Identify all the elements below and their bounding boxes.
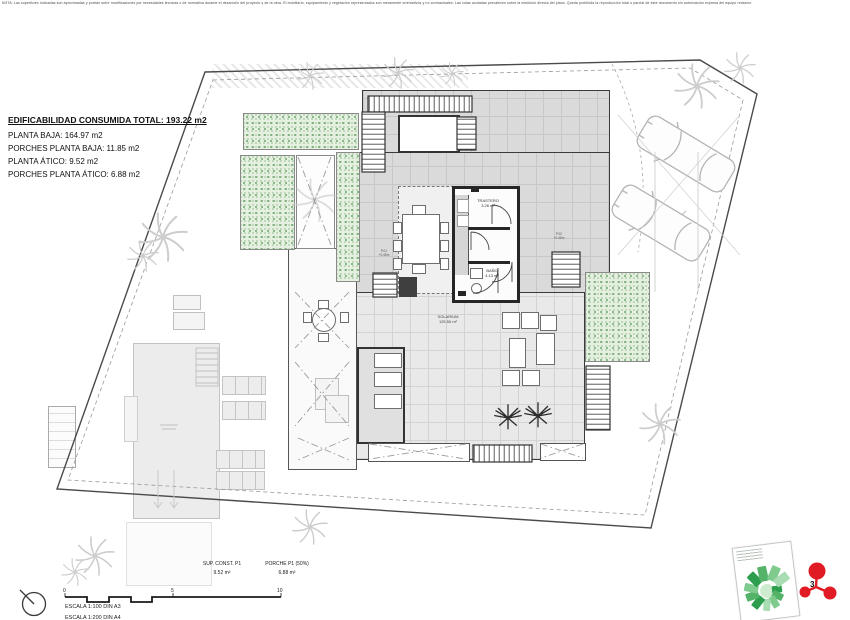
summary-line: PLANTA ÁTICO: 9.52 m2 bbox=[8, 155, 207, 168]
wall bbox=[468, 227, 510, 230]
level-mark: P.01 +0.45m bbox=[374, 249, 394, 257]
toilet bbox=[471, 283, 482, 294]
level-mark: P.02 +0.45m bbox=[549, 232, 569, 240]
solarium-label: SOLARIUM 125.50 m² bbox=[426, 314, 470, 324]
sofa-module bbox=[522, 370, 540, 386]
area-table-value: 6.88 m² bbox=[254, 570, 320, 576]
chair bbox=[340, 312, 349, 323]
green-bed bbox=[336, 152, 360, 282]
stair-landing bbox=[399, 277, 417, 297]
lower-platform bbox=[126, 522, 212, 586]
thumbnail-text-lines bbox=[736, 548, 763, 561]
car-icon bbox=[606, 109, 740, 269]
chair bbox=[440, 240, 449, 252]
sun-lounger bbox=[222, 401, 266, 420]
dining-table bbox=[402, 214, 440, 264]
scale-tick: 10 bbox=[277, 588, 283, 594]
chair bbox=[393, 258, 402, 270]
disclaimer-text: NOTA: Las superficies indicadas son apro… bbox=[2, 1, 848, 5]
chair bbox=[393, 222, 402, 234]
chair bbox=[318, 300, 329, 309]
pool-ladder bbox=[124, 396, 138, 442]
sun-lounger bbox=[374, 394, 402, 409]
wall bbox=[471, 187, 479, 192]
sun-lounger bbox=[216, 471, 265, 490]
gate-structure bbox=[48, 406, 76, 468]
round-table bbox=[312, 308, 336, 332]
sofa-module bbox=[521, 312, 539, 329]
green-bed bbox=[585, 272, 650, 362]
patio-strip bbox=[296, 155, 335, 249]
green-bed bbox=[240, 155, 295, 250]
plan-sheet: NOTA: Las superficies indicadas son apro… bbox=[0, 0, 850, 620]
logo-glyph: 3 bbox=[810, 580, 814, 589]
chair bbox=[303, 312, 312, 323]
chair bbox=[440, 222, 449, 234]
summary-line: PORCHES PLANTA BAJA: 11.85 m2 bbox=[8, 142, 207, 155]
chair bbox=[412, 205, 426, 215]
chair bbox=[412, 264, 426, 274]
buildability-summary: EDIFICABILIDAD CONSUMIDA TOTAL: 193.22 m… bbox=[8, 115, 207, 181]
scale-bar bbox=[65, 593, 281, 602]
green-bed bbox=[243, 113, 359, 150]
area-table: SUP. CONST. P1 PORCHE P1 (50%) 9.52 m² 6… bbox=[190, 561, 320, 576]
room-label-bano: BAÑO 4.13 m² bbox=[470, 268, 514, 278]
area-table-header: PORCHE P1 (50%) bbox=[254, 561, 320, 567]
vegetation-band bbox=[212, 64, 468, 88]
summary-line: PORCHES PLANTA ÁTICO: 6.88 m2 bbox=[8, 168, 207, 181]
north-arrow-icon bbox=[20, 590, 46, 616]
pool-text-mark bbox=[162, 428, 176, 430]
sun-lounger bbox=[325, 395, 349, 423]
sun-lounger bbox=[216, 450, 265, 469]
appliance bbox=[457, 215, 469, 227]
garden-furniture bbox=[173, 312, 205, 330]
sofa-module bbox=[502, 312, 520, 329]
bench bbox=[368, 443, 470, 462]
sofa-module bbox=[540, 315, 557, 331]
site-thumbnail bbox=[732, 541, 801, 620]
coffee-table bbox=[509, 338, 526, 368]
summary-title: EDIFICABILIDAD CONSUMIDA TOTAL: 193.22 m… bbox=[8, 115, 207, 125]
logo-molecule-icon bbox=[800, 563, 837, 600]
chair bbox=[318, 333, 329, 342]
scale-tick: 5 bbox=[171, 588, 174, 594]
sun-lounger bbox=[222, 376, 266, 395]
room-label-trastero: TRASTERO 3.26 m² bbox=[466, 198, 510, 208]
area-table-value: 9.52 m² bbox=[190, 570, 254, 576]
skylight bbox=[398, 115, 460, 153]
area-table-header: SUP. CONST. P1 bbox=[190, 561, 254, 567]
sun-lounger bbox=[374, 353, 402, 368]
wall bbox=[468, 261, 510, 264]
scale-label-secondary: ESCALA 1:200 DIN A4 bbox=[65, 615, 121, 620]
pool bbox=[133, 343, 220, 519]
garden-furniture bbox=[173, 295, 201, 310]
pool-text-mark bbox=[160, 424, 178, 426]
wall bbox=[458, 291, 466, 296]
chair bbox=[440, 258, 449, 270]
bench bbox=[540, 443, 586, 461]
scale-tick: 0 bbox=[63, 588, 66, 594]
chaise-lounge bbox=[536, 333, 555, 365]
walkway-lines bbox=[655, 152, 698, 292]
chair bbox=[393, 240, 402, 252]
scale-label: ESCALA 1:100 DIN A3 bbox=[65, 604, 121, 610]
sofa-module bbox=[502, 370, 520, 386]
sun-lounger bbox=[374, 372, 402, 387]
summary-line: PLANTA BAJA: 164.97 m2 bbox=[8, 129, 207, 142]
